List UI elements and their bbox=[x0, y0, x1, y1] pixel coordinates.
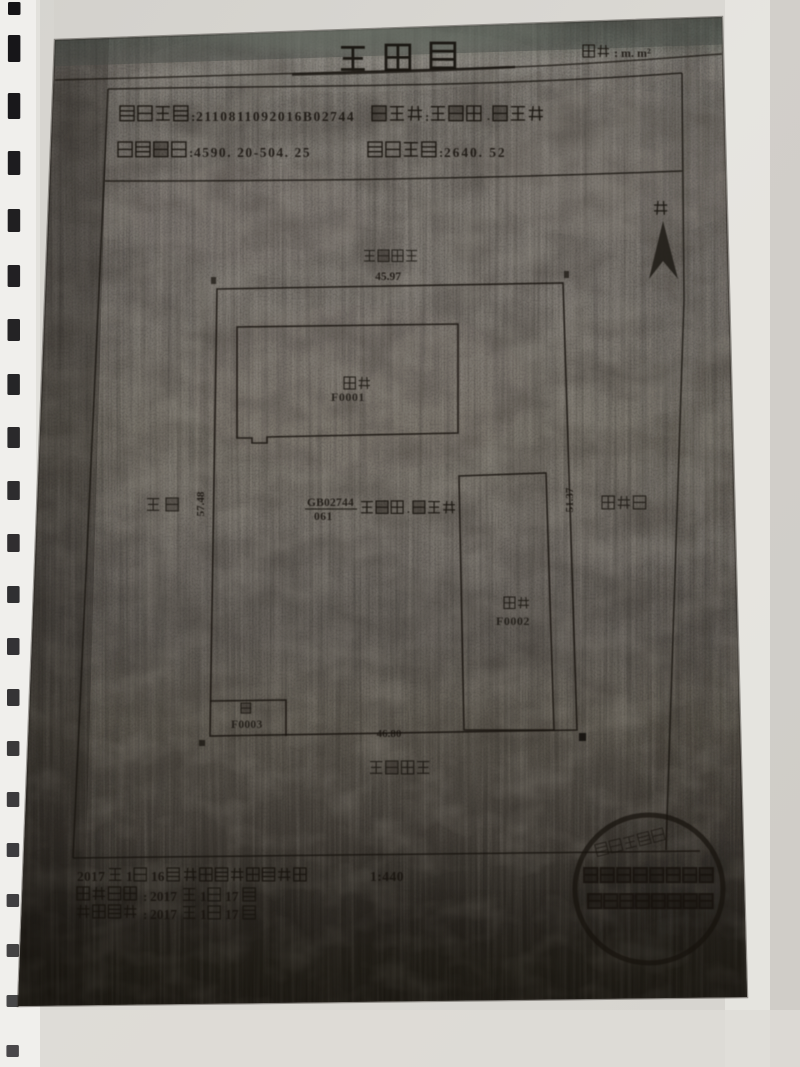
svg-text:GB02744: GB02744 bbox=[307, 497, 354, 509]
svg-text::: : bbox=[143, 907, 147, 922]
svg-text::: : bbox=[189, 145, 193, 160]
svg-text:2017: 2017 bbox=[150, 907, 177, 922]
svg-text:: m. m²: : m. m² bbox=[614, 46, 651, 60]
svg-text:16: 16 bbox=[151, 869, 165, 884]
svg-text:2110811092016B02744: 2110811092016B02744 bbox=[196, 109, 354, 124]
svg-text:17: 17 bbox=[225, 889, 239, 904]
svg-text:57.48: 57.48 bbox=[195, 491, 207, 516]
svg-text:1: 1 bbox=[200, 907, 207, 922]
svg-text:1: 1 bbox=[200, 889, 207, 904]
svg-text::: : bbox=[439, 145, 443, 160]
svg-text::: : bbox=[143, 889, 147, 904]
svg-text:061: 061 bbox=[314, 511, 333, 523]
svg-text:17: 17 bbox=[225, 907, 239, 922]
svg-text:51.37: 51.37 bbox=[564, 487, 576, 512]
svg-text:46.80: 46.80 bbox=[377, 728, 402, 740]
svg-text:F0001: F0001 bbox=[331, 390, 365, 404]
svg-text::: : bbox=[191, 109, 195, 124]
svg-text:F0002: F0002 bbox=[496, 614, 530, 628]
svg-text:2017: 2017 bbox=[77, 869, 105, 884]
svg-text::: : bbox=[425, 109, 429, 124]
svg-text:2640. 52: 2640. 52 bbox=[444, 145, 505, 160]
svg-text:2017: 2017 bbox=[150, 889, 177, 904]
svg-text:F0003: F0003 bbox=[231, 719, 263, 731]
svg-text:.: . bbox=[407, 504, 410, 516]
svg-text:.: . bbox=[487, 109, 490, 123]
svg-text:45.97: 45.97 bbox=[375, 271, 401, 283]
svg-text:4590. 20-504. 25: 4590. 20-504. 25 bbox=[194, 145, 310, 160]
svg-text:1:440: 1:440 bbox=[370, 869, 404, 884]
svg-text:1: 1 bbox=[126, 869, 133, 884]
